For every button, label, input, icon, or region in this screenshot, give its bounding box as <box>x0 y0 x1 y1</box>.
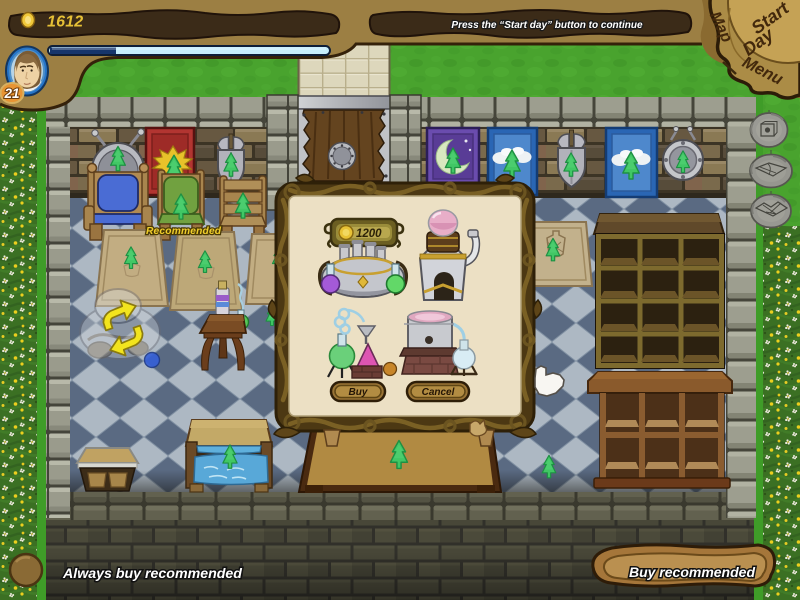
svg-text:Buy recommended: Buy recommended <box>629 564 755 580</box>
svg-text:21: 21 <box>3 86 19 101</box>
svg-text:1612: 1612 <box>47 14 83 31</box>
svg-text:Always buy recommended: Always buy recommended <box>62 566 242 582</box>
svg-text:Buy: Buy <box>349 387 368 398</box>
svg-text:Recommended: Recommended <box>146 226 222 237</box>
svg-text:1200: 1200 <box>356 228 382 240</box>
svg-text:Press the “Start day” button t: Press the “Start day” button to continue <box>451 20 643 31</box>
svg-text:Cancel: Cancel <box>422 387 455 398</box>
